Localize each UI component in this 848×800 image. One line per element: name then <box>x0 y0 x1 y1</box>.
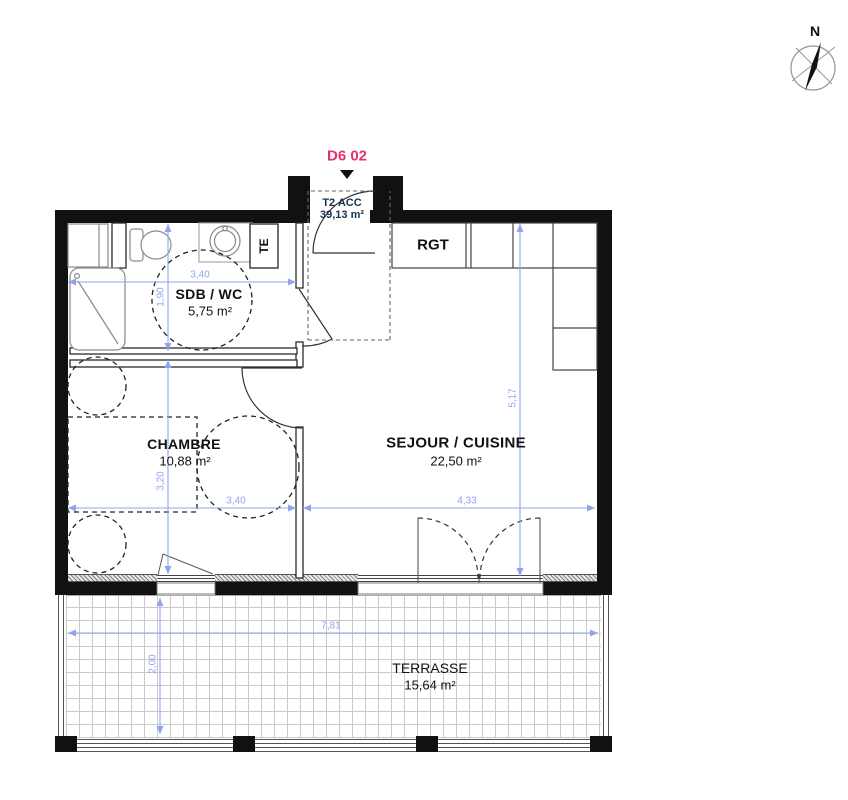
unit-label: D6 02 <box>327 148 367 165</box>
room-area-bedroom: 10,88 m² <box>159 454 210 469</box>
dim-living-depth: 5,17 <box>508 388 519 407</box>
room-label-bedroom: CHAMBRE <box>147 436 221 452</box>
french-door-right-swing <box>480 518 540 578</box>
room-label-terrace: TERRASSE <box>392 660 467 676</box>
terrace-railing <box>55 595 612 752</box>
bedroom-door-swing <box>242 368 302 428</box>
bedroom-window-swing <box>158 554 213 575</box>
turning-circle-bedroom <box>197 416 299 518</box>
dim-bathroom-depth: 1,90 <box>156 287 167 306</box>
entrance-pointer-icon <box>340 170 354 179</box>
room-label-bathroom: SDB / WC <box>176 286 243 302</box>
floor-plan-canvas: D6 02 N T2 ACC 39,13 m² RGT TE SDB / WC … <box>0 0 848 800</box>
cabinet <box>68 224 108 267</box>
dim-terrace-width: 7,81 <box>321 621 340 632</box>
shower-drain-icon <box>75 274 80 279</box>
technical-closet-label: TE <box>257 238 271 253</box>
room-area-living: 22,50 m² <box>430 454 481 469</box>
dim-terrace-depth: 2,00 <box>148 654 159 673</box>
unit-type-label: T2 ACC <box>322 197 361 209</box>
compass-rose-icon <box>791 42 835 91</box>
unit-area-label: 39,13 m² <box>320 209 364 221</box>
dim-bedroom-depth: 3,20 <box>156 471 167 490</box>
north-needle <box>805 42 821 91</box>
bathroom-fixtures <box>68 223 278 350</box>
shower-tray <box>70 268 125 350</box>
dim-bedroom-width: 3,40 <box>226 496 245 507</box>
bathroom-door-leaf <box>299 289 332 339</box>
room-label-living: SEJOUR / CUISINE <box>386 435 526 452</box>
north-label: N <box>810 23 820 39</box>
room-area-bathroom: 5,75 m² <box>188 304 232 319</box>
dim-bathroom-width: 3,40 <box>190 270 209 281</box>
toilet-bowl <box>141 231 171 259</box>
room-area-terrace: 15,64 m² <box>404 678 455 693</box>
storage-closet-label: RGT <box>417 237 449 254</box>
dim-living-width: 4,33 <box>457 496 476 507</box>
french-door-left-swing <box>418 518 478 578</box>
sink-faucet-icon <box>223 226 227 230</box>
